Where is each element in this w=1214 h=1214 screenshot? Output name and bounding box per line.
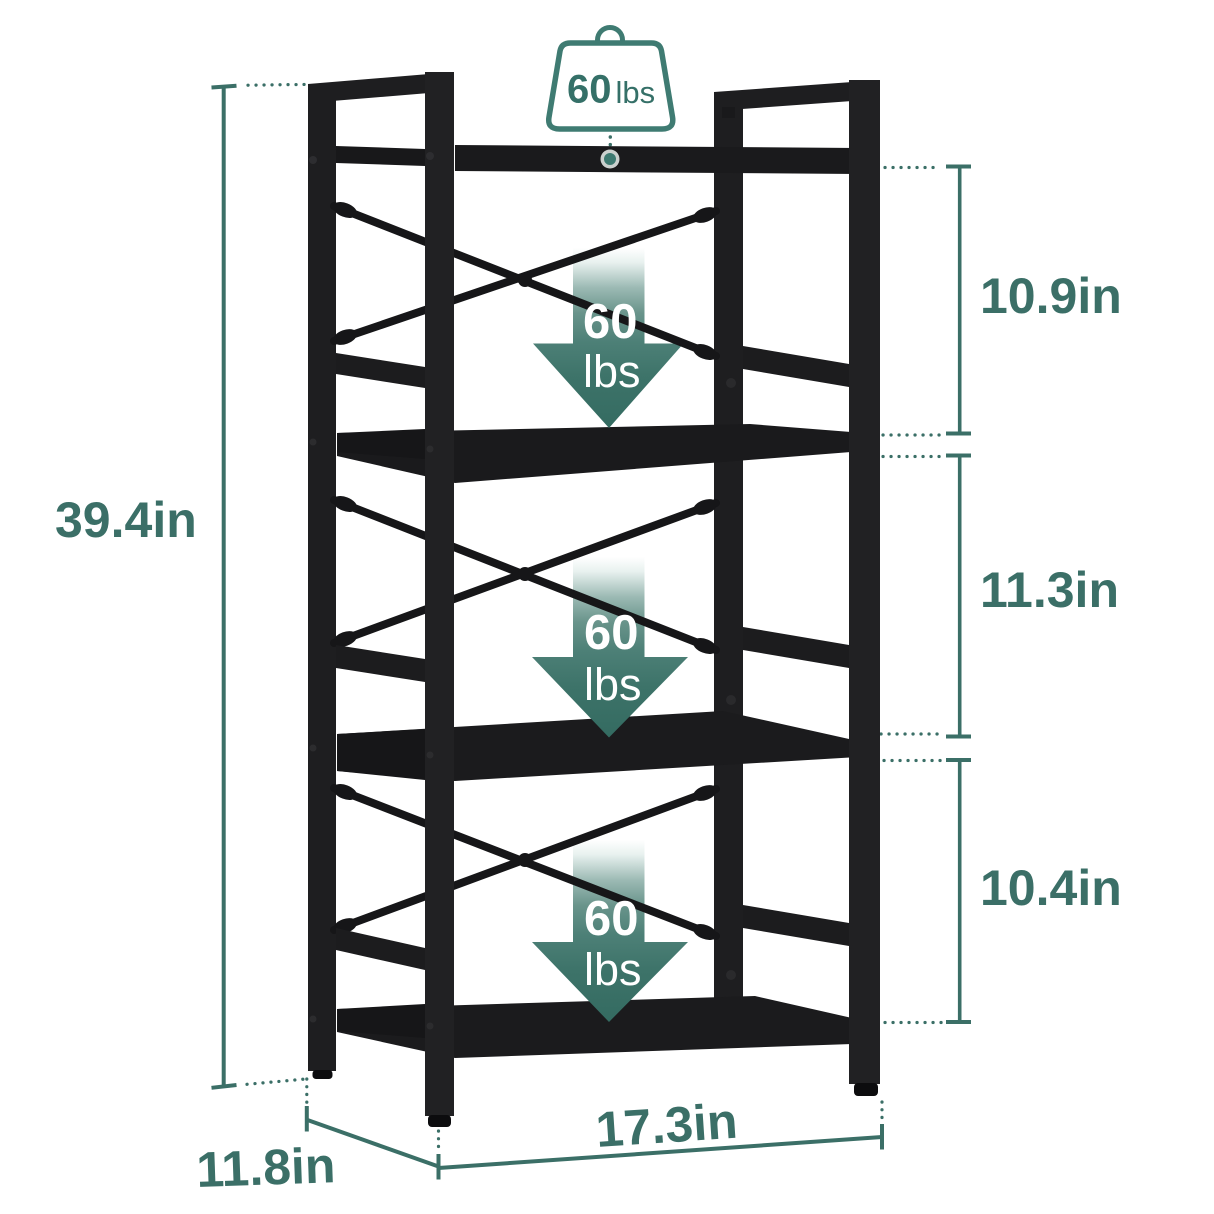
svg-text:10.9in: 10.9in — [980, 268, 1122, 324]
svg-text:10.4in: 10.4in — [980, 860, 1122, 916]
svg-text:39.4in: 39.4in — [55, 492, 197, 548]
svg-text:11.3in: 11.3in — [980, 562, 1119, 618]
svg-text:lbs: lbs — [584, 659, 642, 710]
svg-text:lbs: lbs — [584, 944, 642, 995]
svg-text:11.8in: 11.8in — [195, 1137, 336, 1198]
svg-text:60: 60 — [584, 606, 639, 660]
svg-text:17.3in: 17.3in — [594, 1093, 739, 1158]
svg-text:60: 60 — [583, 295, 638, 349]
svg-text:lbs: lbs — [616, 75, 656, 110]
svg-text:lbs: lbs — [583, 346, 641, 397]
svg-text:60: 60 — [584, 892, 639, 946]
svg-text:60: 60 — [567, 68, 612, 112]
